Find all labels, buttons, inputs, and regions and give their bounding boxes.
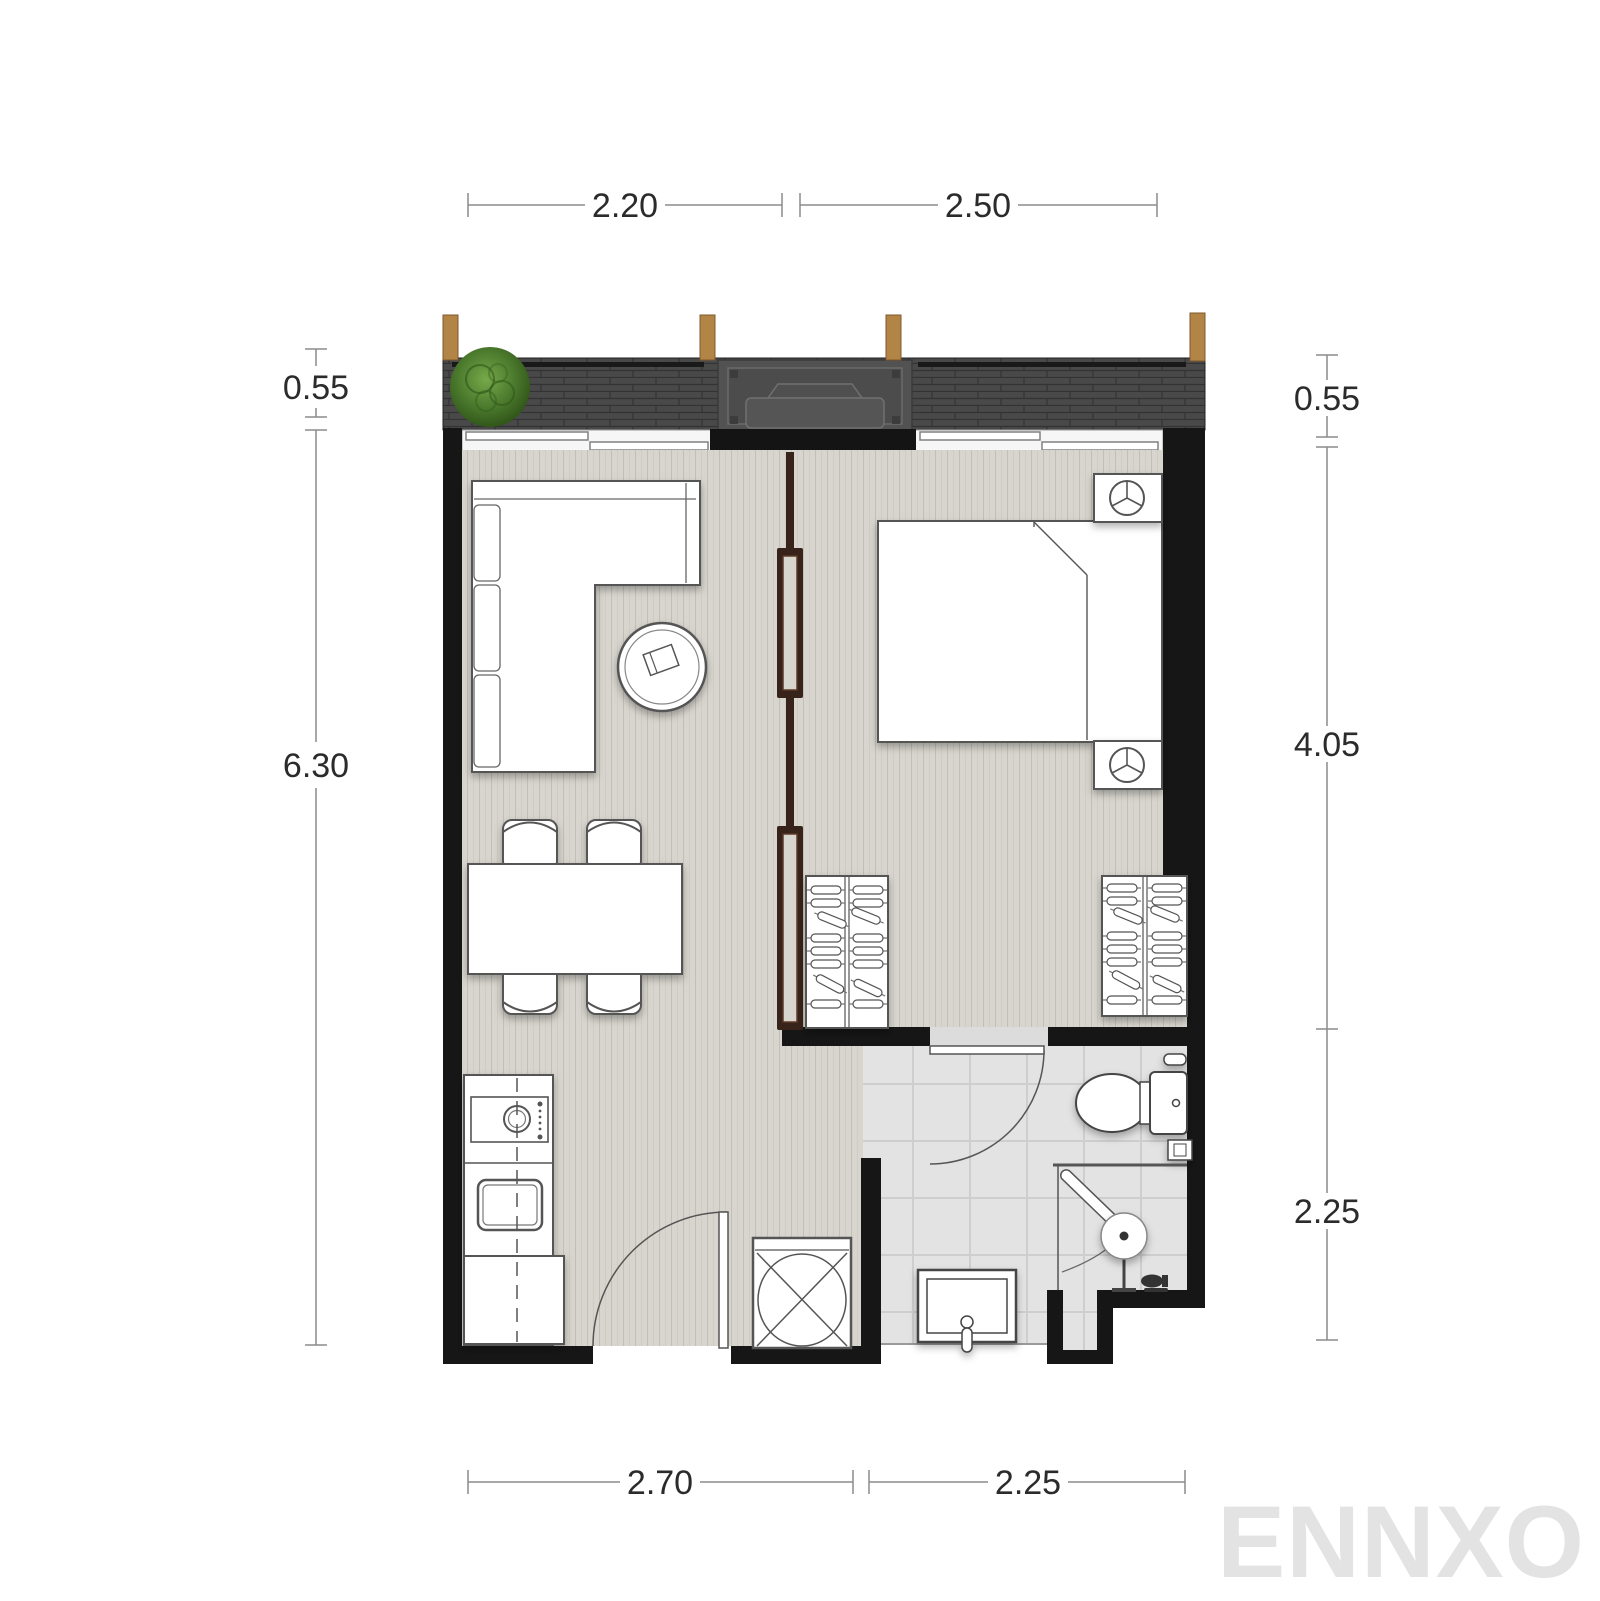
wardrobe-hangers-icon [806, 876, 888, 1028]
bathroom-threshold [930, 1027, 1048, 1046]
dim-label-top-2: 2.50 [945, 187, 1011, 225]
dim-label-right-3: 2.25 [1294, 1193, 1360, 1231]
balcony [443, 313, 1205, 430]
wardrobe-hangers-icon [1102, 876, 1187, 1016]
faucet-icon [1141, 1275, 1168, 1293]
dim-label-left-1: 0.55 [283, 369, 349, 407]
wall [1113, 1290, 1205, 1308]
plant-icon [450, 347, 530, 427]
window-icon [1042, 442, 1158, 450]
coffee-table-icon [618, 623, 706, 711]
dim-label-left-2: 6.30 [283, 747, 349, 785]
wall [443, 428, 462, 1364]
nightstand-lamp-icon [1094, 474, 1162, 522]
kitchen-sink-icon [478, 1180, 542, 1230]
wall [1163, 428, 1205, 878]
floor-plan-page: 2.20 2.50 0.55 6.30 0.55 4.05 2.25 2.70 … [0, 0, 1600, 1601]
dim-label-right-2: 4.05 [1294, 726, 1360, 764]
dim-label-top-1: 2.20 [592, 187, 658, 225]
handrail [918, 362, 1186, 367]
dim-label-right-1: 0.55 [1294, 380, 1360, 418]
floor-plan-drawing: 2.20 2.50 0.55 6.30 0.55 4.05 2.25 2.70 … [0, 0, 1600, 1601]
nightstand-lamp-icon [1094, 741, 1162, 789]
wall [1048, 1027, 1187, 1046]
window-icon [920, 432, 1040, 440]
wall [782, 1027, 930, 1046]
dining-chair-icon [503, 820, 557, 870]
window-icon [466, 432, 588, 440]
window-icon [590, 442, 708, 450]
kitchen-counter [464, 1075, 564, 1345]
wall [861, 1158, 881, 1364]
wood-posts [443, 313, 1205, 361]
dim-label-bottom-2: 2.25 [995, 1464, 1061, 1502]
service-shaft-icon [753, 1238, 851, 1348]
dining-table-icon [468, 864, 682, 974]
dim-right-3 [1316, 1029, 1338, 1340]
dim-left-2 [305, 430, 327, 1345]
ac-unit-icon [718, 360, 912, 430]
wall [1047, 1350, 1113, 1364]
dim-label-bottom-1: 2.70 [627, 1464, 693, 1502]
bed-icon [878, 521, 1162, 742]
window-band [462, 429, 1163, 452]
washing-machine-icon [471, 1097, 548, 1142]
washbasin-icon [918, 1270, 1016, 1352]
dining-chair-icon [587, 820, 641, 870]
niche-floor [1063, 1290, 1097, 1352]
watermark-text: ENNXO [1217, 1485, 1585, 1599]
wall [443, 1346, 593, 1364]
wall [1187, 878, 1205, 1034]
wall [1187, 1034, 1205, 1308]
